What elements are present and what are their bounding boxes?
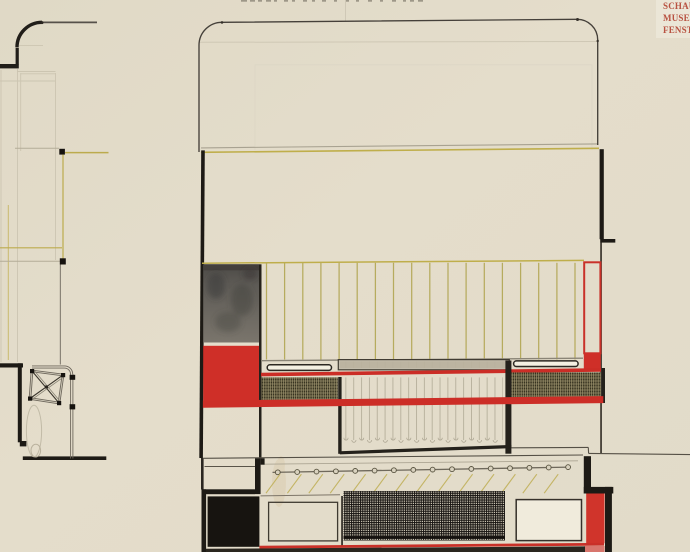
svg-text:MUSEUM: MUSEUM — [663, 13, 690, 23]
svg-text:FENSTE: FENSTE — [663, 25, 690, 35]
svg-text:SCHAUF: SCHAUF — [663, 1, 690, 11]
